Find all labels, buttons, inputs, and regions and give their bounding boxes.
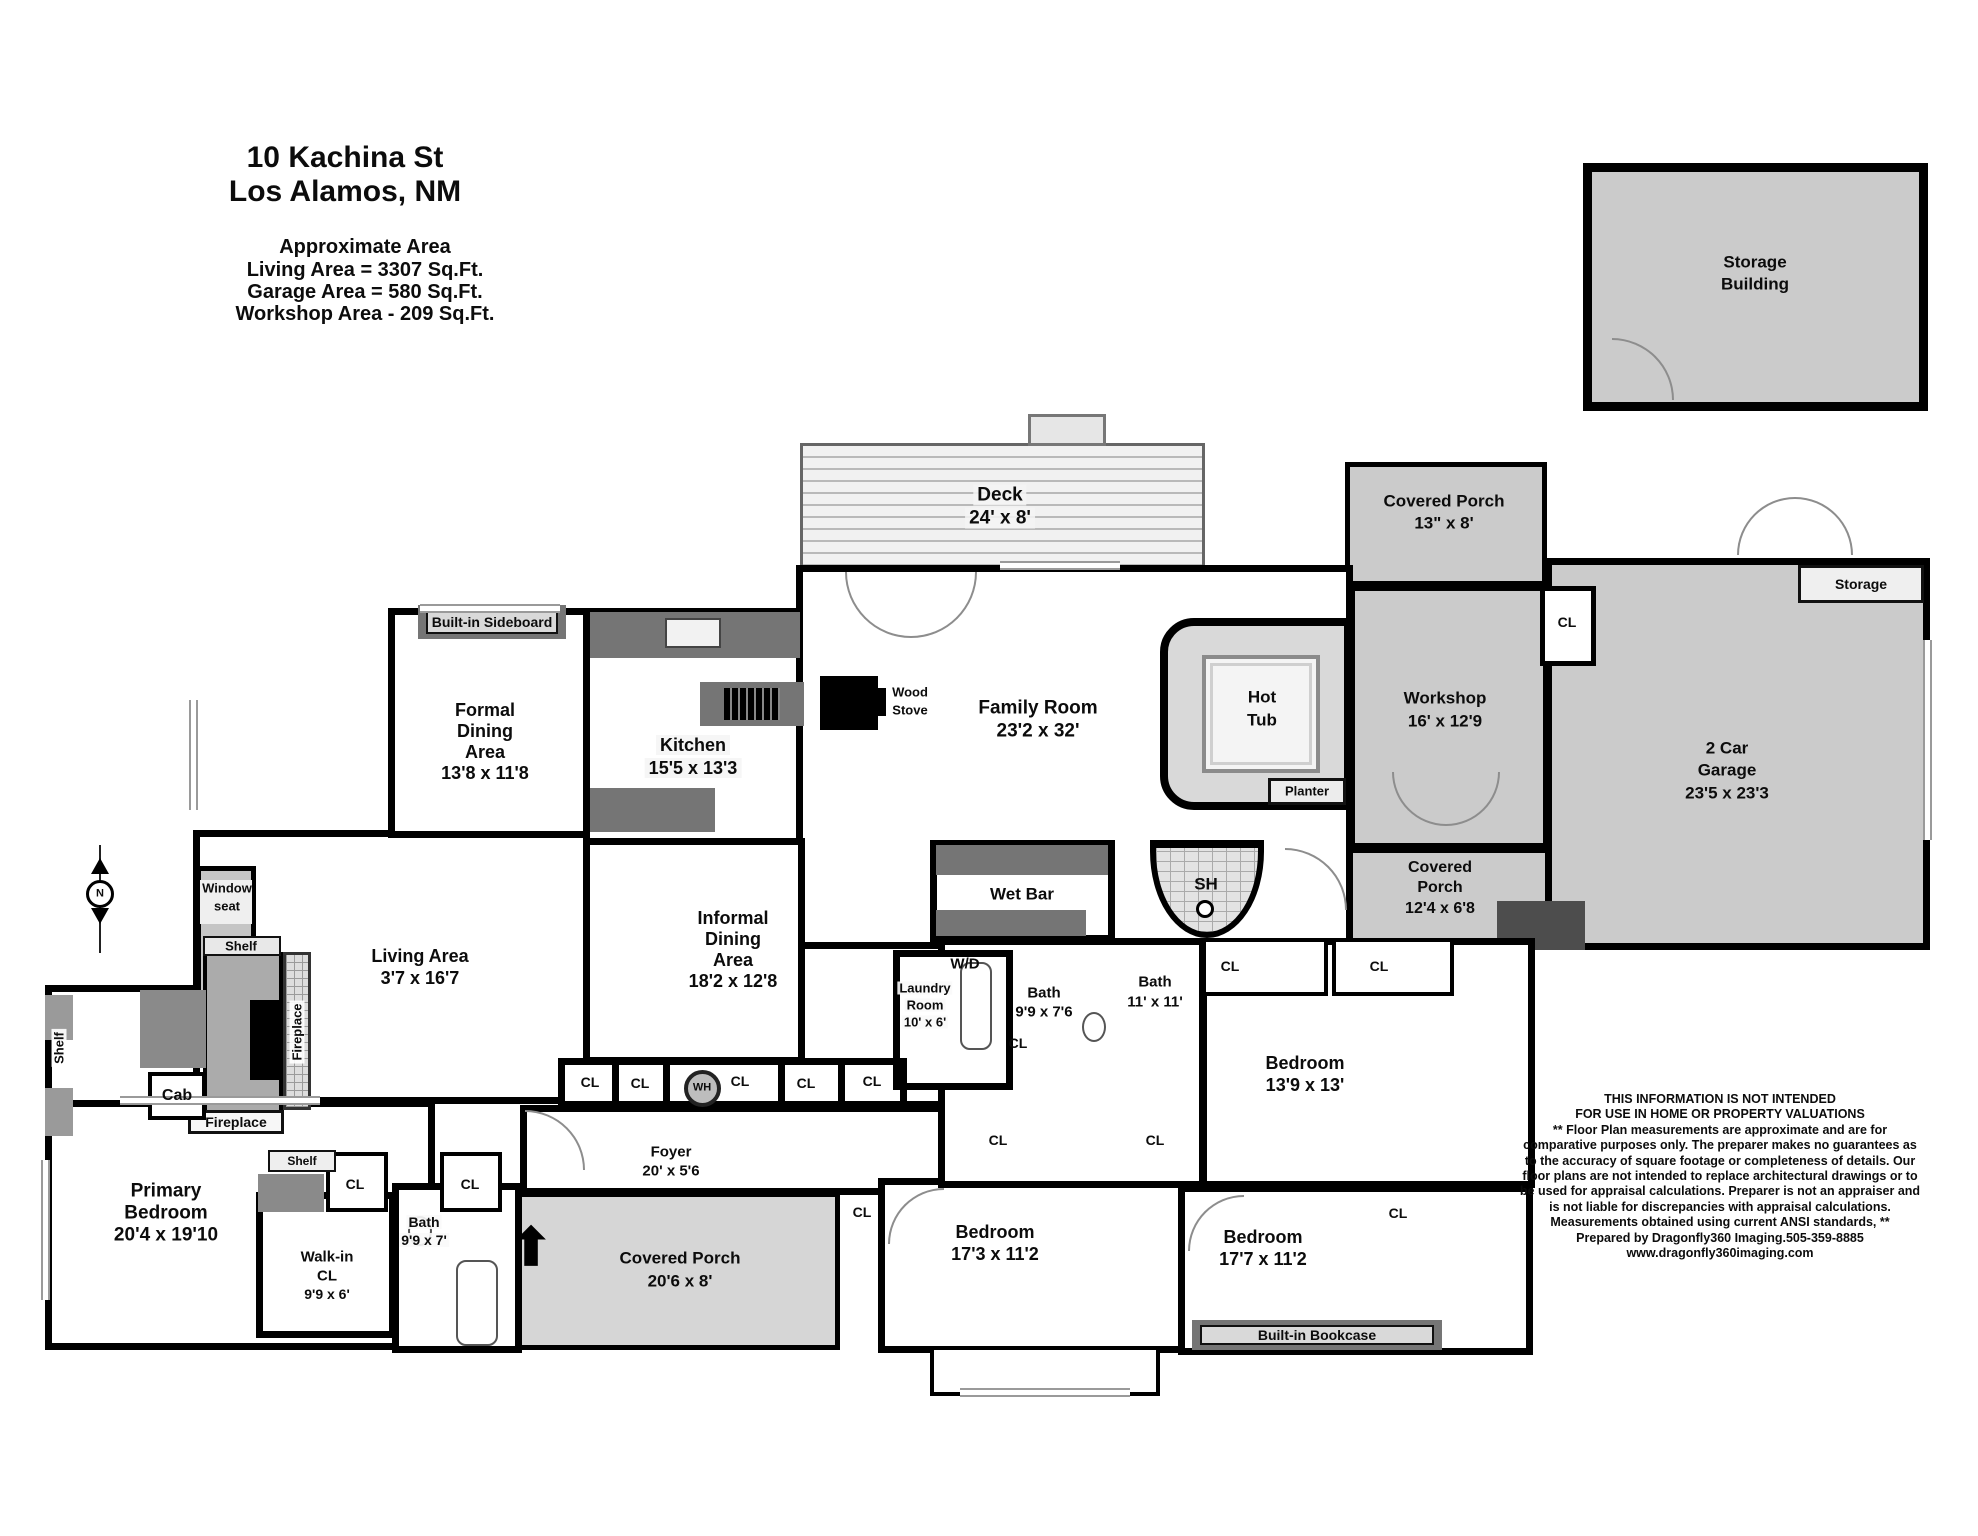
workshop-label: Workshop <box>1404 690 1487 707</box>
stairs-up-arrow: ⬆ <box>509 1222 553 1274</box>
covered-porch-mid-label: Porch <box>1417 880 1462 896</box>
primary-bedroom-dims: 20'4 x 19'10 <box>114 1226 218 1245</box>
area-workshop: Workshop Area - 209 Sq.Ft. <box>236 304 495 324</box>
living-area-dims: 3'7 x 16'7 <box>381 969 460 987</box>
cl-label: CL <box>631 1076 650 1090</box>
covered-porch-bottom-label: Covered Porch <box>620 1250 741 1267</box>
wood-stove-label: Wood <box>892 686 928 699</box>
workshop-dims: 16' x 12'9 <box>1408 713 1482 730</box>
garage-label: Garage <box>1698 762 1757 779</box>
covered-porch-bottom-dims: 20'6 x 8' <box>648 1273 713 1290</box>
disclaimer-line: floor plans are not intended to replace … <box>1492 1169 1948 1184</box>
formal-dining-label: Formal <box>455 701 515 719</box>
primary-bedroom-label: Primary <box>131 1182 202 1201</box>
family-room-label: Family Room <box>978 699 1097 718</box>
disclaimer-line: www.dragonfly360imaging.com <box>1492 1246 1948 1261</box>
fireplace-firebox <box>250 1000 280 1080</box>
wood-stove-vent <box>876 688 886 716</box>
informal-dining-label: Informal <box>697 909 768 927</box>
cl-label: CL <box>989 1133 1008 1147</box>
disclaimer-line: ** Floor Plan measurements are approxima… <box>1492 1123 1948 1138</box>
bath-1111-label: Bath <box>1138 975 1171 990</box>
shower-head <box>1196 900 1214 918</box>
cl-label: CL <box>863 1074 882 1088</box>
formal-dining-label: Area <box>465 743 505 761</box>
laundry-label: Room <box>905 999 946 1012</box>
shelf-label: Shelf <box>287 1155 316 1167</box>
window <box>1923 640 1932 840</box>
disclaimer-line: comparative purposes only. The preparer … <box>1492 1138 1948 1153</box>
cl-label: CL <box>1389 1206 1408 1220</box>
bath-976-dims: 9'9 x 7'6 <box>1015 1005 1072 1020</box>
bath-976-label: Bath <box>1027 986 1060 1001</box>
fireplace-label: Fireplace <box>290 1000 305 1063</box>
compass-north-triangle <box>91 858 109 874</box>
cl-label: CL <box>797 1076 816 1090</box>
shelf-label: Shelf <box>52 1029 67 1067</box>
storage-building-label: Building <box>1721 276 1789 293</box>
closet-divider <box>838 1058 845 1108</box>
built-in-bookcase-label: Built-in Bookcase <box>1258 1328 1376 1342</box>
address-line1: 10 Kachina St <box>247 143 444 173</box>
window-seat-label: seat <box>214 900 240 913</box>
cl-label: CL <box>853 1205 872 1219</box>
cl-label-workshop: CL <box>1558 615 1577 629</box>
kitchen-counter-low <box>590 788 715 832</box>
cl-label: CL <box>461 1177 480 1191</box>
covered-porch-mid-label: Covered <box>1408 860 1472 876</box>
kitchen-label: Kitchen <box>656 735 730 755</box>
cl-label: CL <box>1370 959 1389 973</box>
left-shelf-bottom <box>45 1088 73 1136</box>
window <box>189 700 198 810</box>
closet-divider <box>900 1058 907 1108</box>
informal-dining-label: Dining <box>705 930 761 948</box>
toilet <box>1082 1012 1106 1042</box>
shower-label: SH <box>1194 876 1218 893</box>
bedroom-13-9-closet-left <box>1200 938 1328 996</box>
fireplace-label: Fireplace <box>205 1115 266 1129</box>
primary-bedroom-label: Bedroom <box>124 1204 207 1223</box>
foyer-dims: 20' x 5'6 <box>642 1164 699 1179</box>
walkin-cl-dims: 9'9 x 6' <box>304 1287 350 1301</box>
kitchen-dims: 15'5 x 13'3 <box>645 758 742 778</box>
bath-997-dims: 9'9 x 7' <box>399 1233 449 1247</box>
covered-porch-top-dims: 13" x 8' <box>1414 515 1473 532</box>
area-living: Living Area = 3307 Sq.Ft. <box>247 260 484 280</box>
wet-bar-counter-top <box>936 845 1108 875</box>
garage-dims: 23'5 x 23'3 <box>1685 785 1769 802</box>
living-area-label: Living Area <box>371 947 468 965</box>
bedroom-139-label: Bedroom <box>1265 1054 1344 1072</box>
bedroom-13-9-closet-right <box>1332 938 1454 996</box>
compass-label: N <box>96 889 104 900</box>
laundry-dims: 10' x 6' <box>902 1016 948 1029</box>
window <box>120 1096 320 1105</box>
deck-label: Deck <box>973 485 1026 506</box>
compass-south-triangle <box>91 908 109 924</box>
area-heading: Approximate Area <box>279 237 451 257</box>
formal-dining-dims: 13'8 x 11'8 <box>441 764 529 782</box>
desk <box>140 990 206 1068</box>
family-room-dims: 23'2 x 32' <box>997 722 1080 741</box>
cl-label: CL <box>1146 1133 1165 1147</box>
informal-dining <box>583 838 805 1064</box>
garage-storage-label: Storage <box>1835 577 1887 591</box>
foyer-label: Foyer <box>651 1145 692 1160</box>
closet-divider <box>663 1058 670 1108</box>
bathtub <box>960 962 992 1050</box>
disclaimer-line: is not liable for discrepancies with app… <box>1492 1200 1948 1215</box>
shelf-label: Shelf <box>225 940 257 953</box>
disclaimer-line: Prepared by Dragonfly360 Imaging.505-359… <box>1492 1231 1948 1246</box>
cab-label: Cab <box>162 1088 192 1104</box>
closet-divider <box>778 1058 785 1108</box>
kitchen-sink <box>665 618 721 648</box>
floor-plan: ⬆ N 10 Kachina St Los Alamos, NM Approxi… <box>0 0 1978 1536</box>
hot-tub-label: Tub <box>1247 712 1277 729</box>
address-line2: Los Alamos, NM <box>229 177 461 207</box>
cl-label: CL <box>1009 1036 1028 1050</box>
planter-label: Planter <box>1285 785 1329 798</box>
wet-bar-counter-bottom <box>936 910 1086 936</box>
hot-tub-label: Hot <box>1248 689 1276 706</box>
wd-label: W/D <box>950 957 979 972</box>
window <box>960 1388 1130 1397</box>
window <box>1000 561 1120 570</box>
bedroom-139-dims: 13'9 x 13' <box>1266 1076 1345 1094</box>
cl-label: CL <box>1221 959 1240 973</box>
window-seat-label: Window <box>202 882 252 895</box>
closet-divider <box>612 1058 619 1108</box>
disclaimer-line: be used for appraisal calculations. Prep… <box>1492 1184 1948 1199</box>
built-in-sideboard-label: Built-in Sideboard <box>432 615 553 629</box>
window <box>41 1160 50 1300</box>
garage-double-door-arc-right <box>1795 497 1853 555</box>
hall-shelf-cabinet <box>258 1174 324 1212</box>
garage-double-door-arc-left <box>1737 497 1795 555</box>
bedroom-177-dims: 17'7 x 11'2 <box>1219 1250 1307 1268</box>
walkin-cl-label: Walk-in <box>301 1250 354 1265</box>
kitchen-stove <box>724 688 780 720</box>
disclaimer-line: Measurements obtained using current ANSI… <box>1492 1215 1948 1230</box>
deck-dims: 24' x 8' <box>965 508 1035 529</box>
informal-dining-dims: 18'2 x 12'8 <box>689 972 778 990</box>
cl-label: CL <box>581 1075 600 1089</box>
covered-porch-top-label: Covered Porch <box>1384 493 1505 510</box>
walkin-cl-label: CL <box>317 1269 337 1284</box>
area-garage: Garage Area = 580 Sq.Ft. <box>247 282 482 302</box>
covered-porch-mid-dims: 12'4 x 6'8 <box>1405 901 1475 917</box>
wet-bar-label: Wet Bar <box>990 886 1054 903</box>
disclaimer-line: THIS INFORMATION IS NOT INTENDED <box>1492 1092 1948 1107</box>
bedroom-177-label: Bedroom <box>1223 1228 1302 1246</box>
laundry-label: Laundry <box>897 982 952 995</box>
cl-label: CL <box>346 1177 365 1191</box>
disclaimer-line: FOR USE IN HOME OR PROPERTY VALUATIONS <box>1492 1107 1948 1122</box>
bath-1111-dims: 11' x 11' <box>1127 995 1183 1010</box>
wh-label: WH <box>693 1083 711 1094</box>
formal-dining-label: Dining <box>457 722 513 740</box>
disclaimer-block: THIS INFORMATION IS NOT INTENDED FOR USE… <box>1492 1092 1948 1261</box>
garage-label: 2 Car <box>1706 740 1749 757</box>
storage-building-label: Storage <box>1723 254 1786 271</box>
disclaimer-line: to the accuracy of square footage or com… <box>1492 1154 1948 1169</box>
window <box>420 604 560 613</box>
bedroom-173-dims: 17'3 x 11'2 <box>951 1245 1039 1263</box>
bath-997-label: Bath <box>406 1215 441 1229</box>
informal-dining-label: Area <box>713 951 753 969</box>
wood-stove <box>820 676 878 730</box>
bedroom-173-label: Bedroom <box>955 1223 1034 1241</box>
cl-label: CL <box>731 1074 750 1088</box>
bathtub-primary <box>456 1260 498 1346</box>
chimney <box>1028 414 1106 446</box>
wood-stove-label: Stove <box>892 704 927 717</box>
